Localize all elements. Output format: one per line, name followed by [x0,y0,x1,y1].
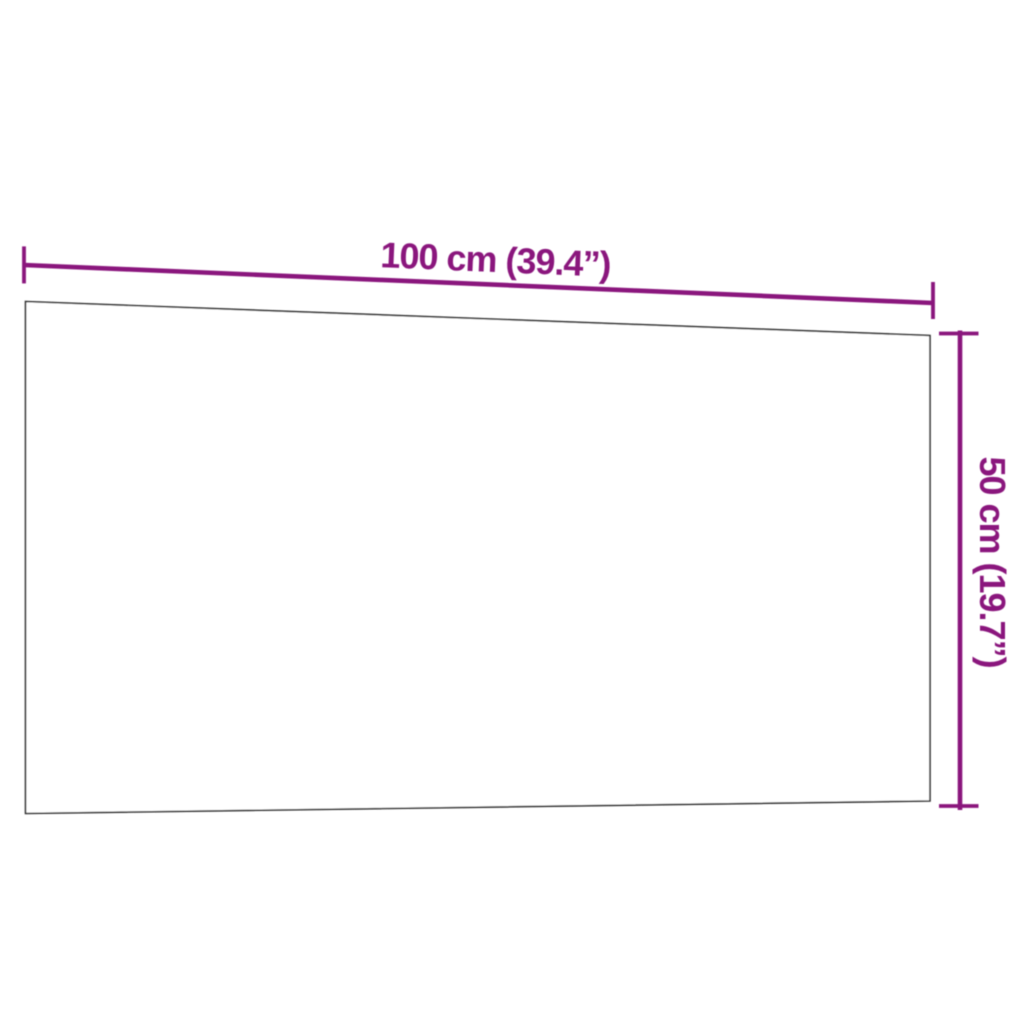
svg-text:100 cm (39.4”): 100 cm (39.4”) [380,234,612,285]
svg-text:50 cm (19.7”): 50 cm (19.7”) [972,456,1013,667]
